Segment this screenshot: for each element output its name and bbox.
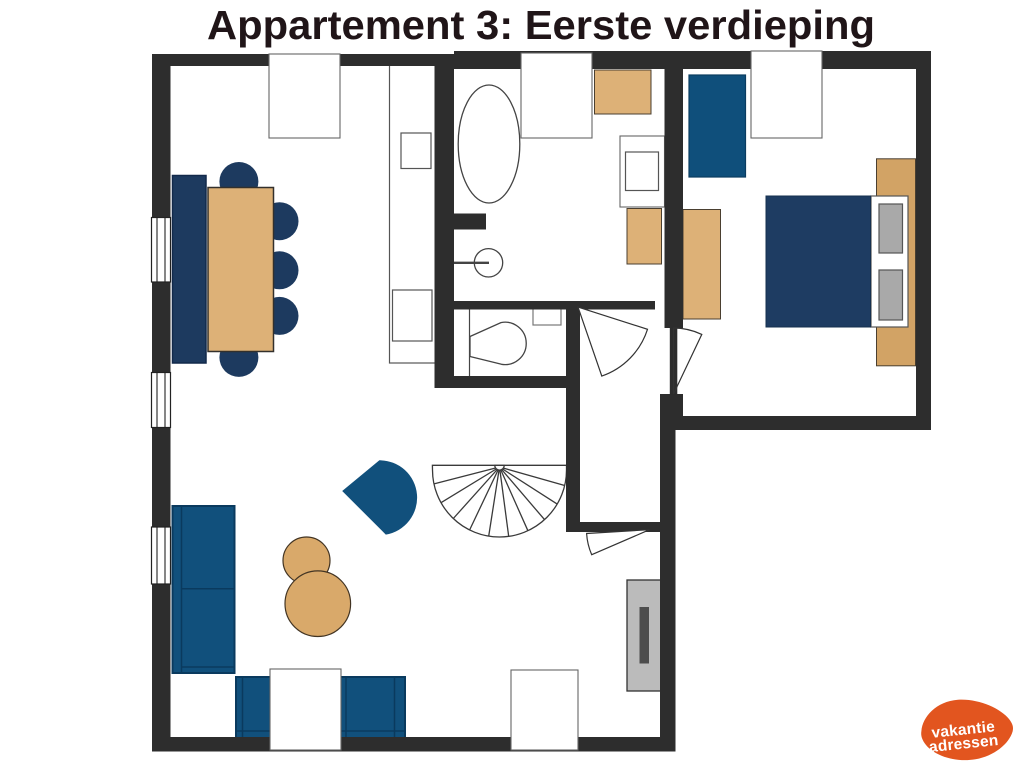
svg-text:Appartement 3: Eerste verdiepi: Appartement 3: Eerste verdieping [207, 2, 875, 48]
